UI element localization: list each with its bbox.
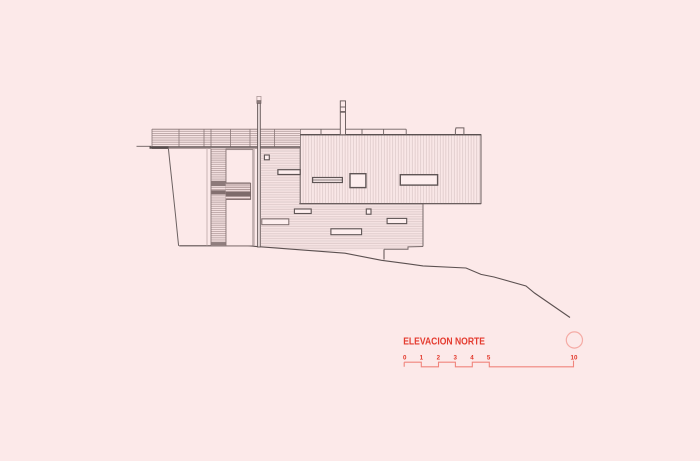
svg-text:ELEVACION NORTE: ELEVACION NORTE (403, 337, 485, 348)
svg-text:10: 10 (571, 354, 578, 361)
svg-text:1: 1 (420, 354, 424, 361)
svg-text:0: 0 (403, 354, 407, 361)
svg-text:4: 4 (470, 354, 474, 361)
svg-text:2: 2 (437, 354, 441, 361)
svg-text:5: 5 (487, 354, 491, 361)
svg-text:3: 3 (453, 354, 457, 361)
